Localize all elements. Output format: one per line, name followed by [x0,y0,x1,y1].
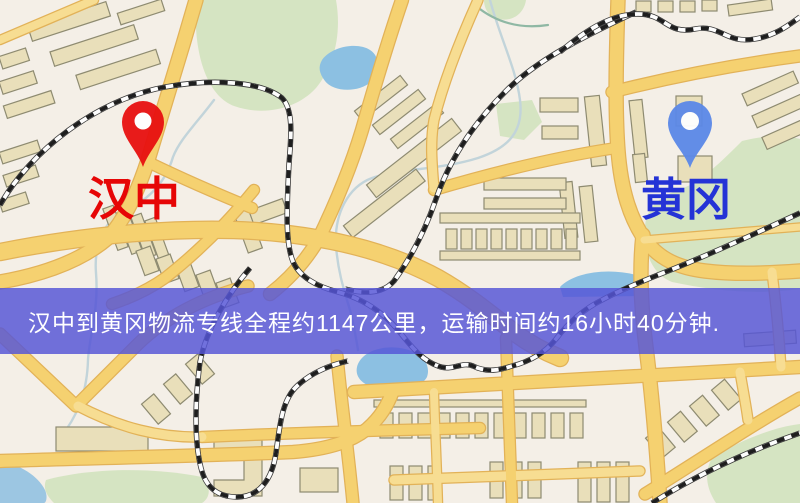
map-view: 汉中 黄冈 汉中到黄冈物流专线全程约1147公里，运输时间约16小时40分钟. [0,0,800,503]
origin-pin-body [122,101,164,167]
map-background [0,0,800,503]
route-info-text: 汉中到黄冈物流专线全程约1147公里，运输时间约16小时40分钟. [0,288,800,354]
destination-pin-hole [681,112,699,130]
origin-pin-hole [135,113,152,130]
origin-city-label: 汉中 [88,176,180,222]
route-info-banner: 汉中到黄冈物流专线全程约1147公里，运输时间约16小时40分钟. [0,288,800,354]
destination-city-label: 黄冈 [641,177,731,222]
origin-pin-icon[interactable] [122,101,164,167]
